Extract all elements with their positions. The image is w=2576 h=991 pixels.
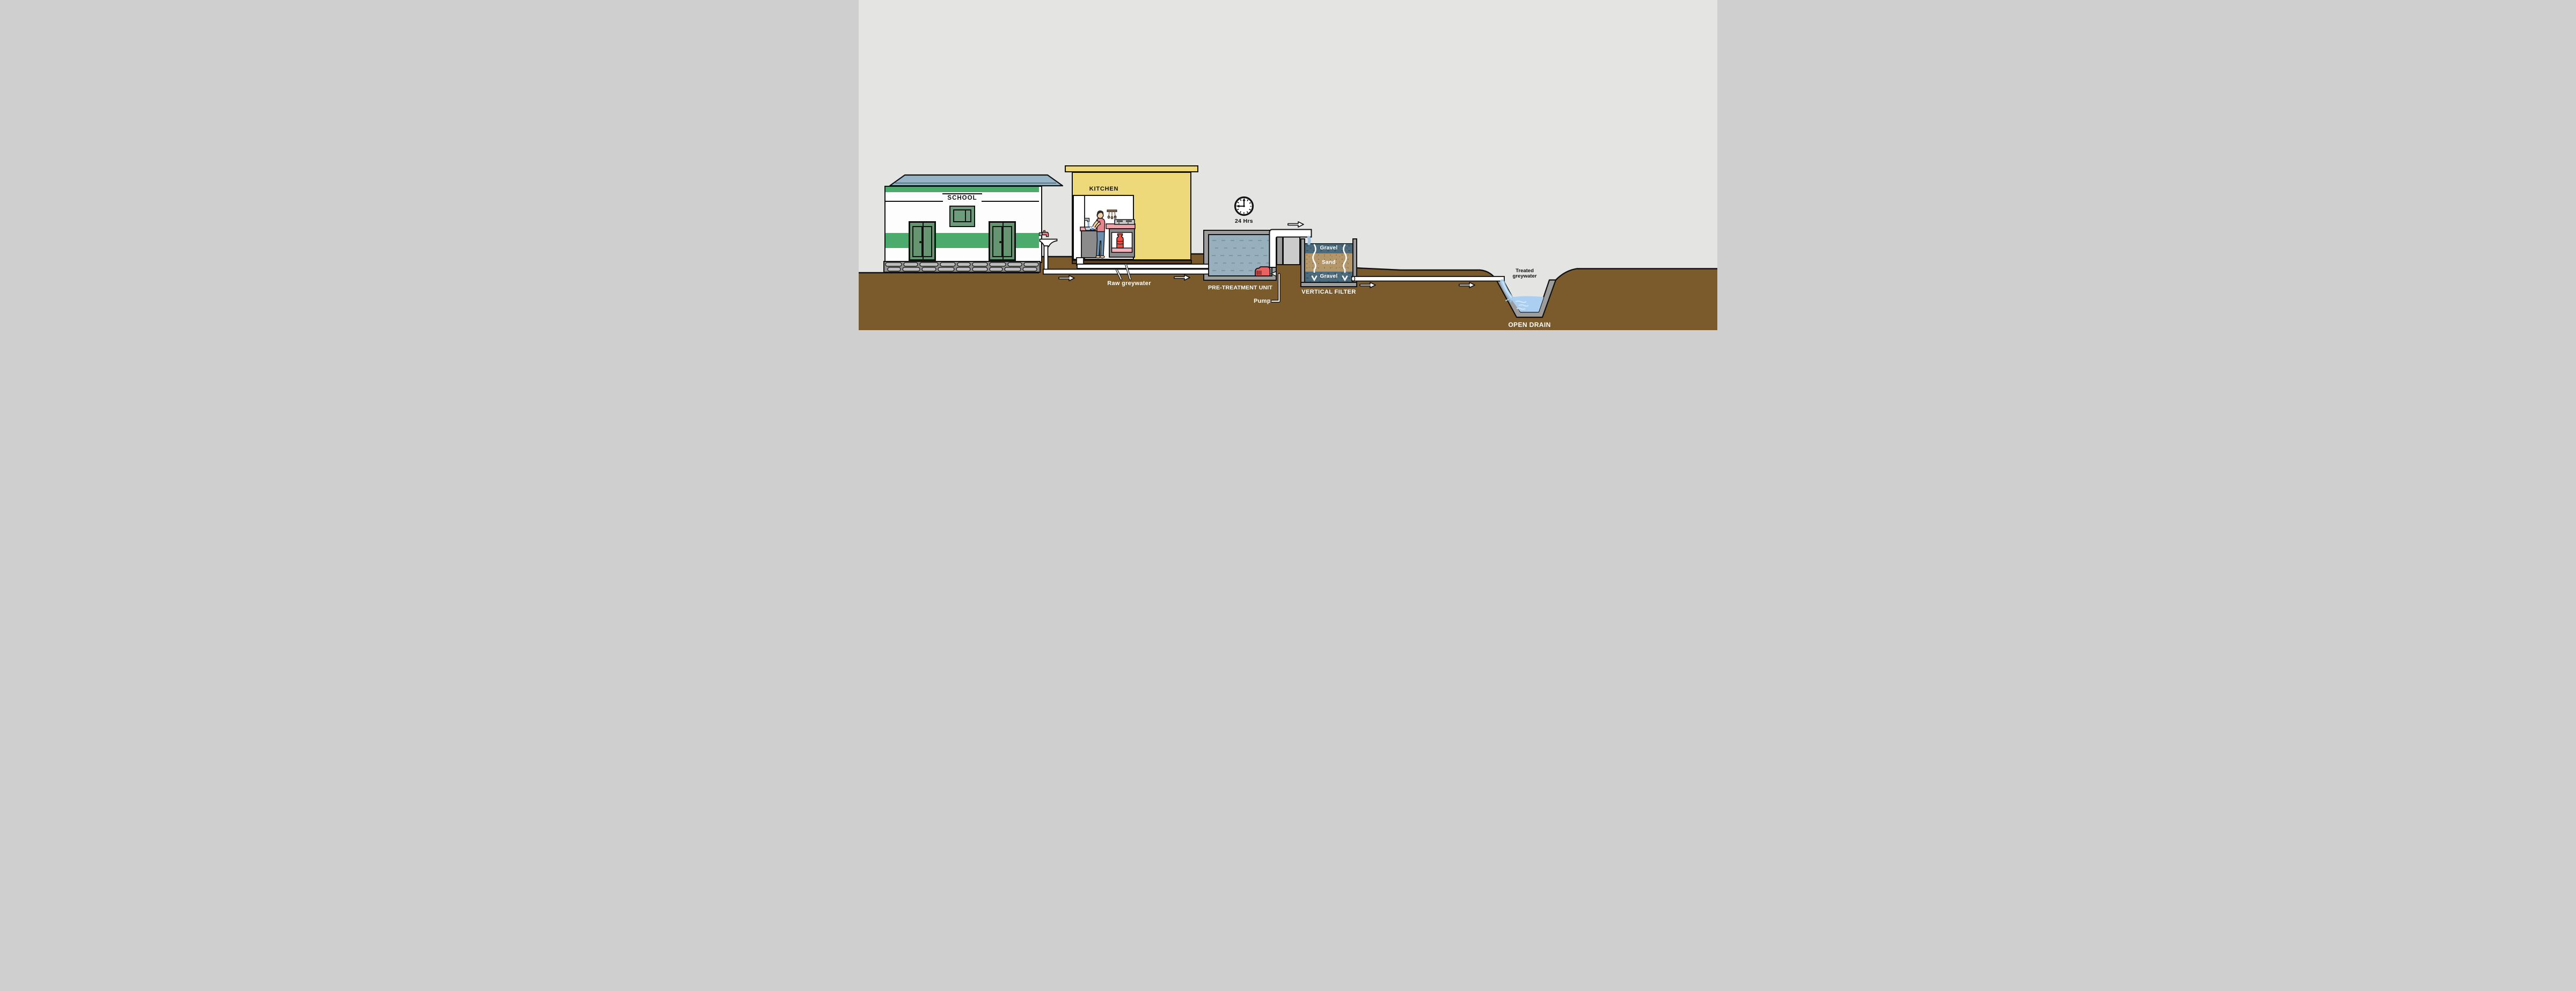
school-tap-icon [1040, 230, 1049, 236]
school-greywater-pipe [1043, 269, 1209, 274]
clock-icon [1235, 198, 1253, 215]
kitchen-greywater-pipe [1077, 264, 1209, 268]
treated-greywater-line2: greywater [1513, 273, 1537, 279]
percolation-arrow-icon-right [1343, 245, 1347, 280]
flow-arrow-icon-1 [1059, 275, 1074, 281]
pump-label: Pump [1254, 298, 1271, 304]
school-wash-basin [1040, 239, 1057, 247]
pump-riser-pipe [1270, 230, 1312, 268]
greywater-system-diagram: SCHOOL KITCHEN [859, 0, 1717, 330]
outlet-pipe-mouth [1352, 276, 1355, 281]
filter-inlet-stream [1309, 237, 1309, 244]
raw-greywater-label: Raw greywater [1107, 280, 1151, 287]
flow-arrow-icon-3 [1288, 222, 1304, 227]
duration-label: 24 Hrs [1235, 218, 1253, 224]
open-drain-label: OPEN DRAIN [1508, 321, 1550, 329]
filter-layer-bottom-label: Gravel [1320, 274, 1338, 280]
overlay-graphics [859, 0, 1717, 330]
flow-arrow-icon-4 [1360, 282, 1375, 288]
basin-drain-pipe [1044, 246, 1048, 271]
flow-arrow-icon-5 [1459, 282, 1475, 288]
treated-greywater-label: Treated greywater [1492, 268, 1557, 279]
flow-arrow-icon-2 [1174, 275, 1190, 280]
filter-layer-top-label: Gravel [1320, 245, 1338, 251]
vertical-filter-label: VERTICAL FILTER [1301, 289, 1356, 295]
percolation-arrow-icon-left [1312, 245, 1316, 280]
pretreatment-unit-label: PRE-TREATMENT UNIT [1208, 285, 1272, 291]
filter-outlet-pipe [1352, 276, 1504, 281]
filter-layer-middle-label: Sand [1322, 260, 1336, 266]
